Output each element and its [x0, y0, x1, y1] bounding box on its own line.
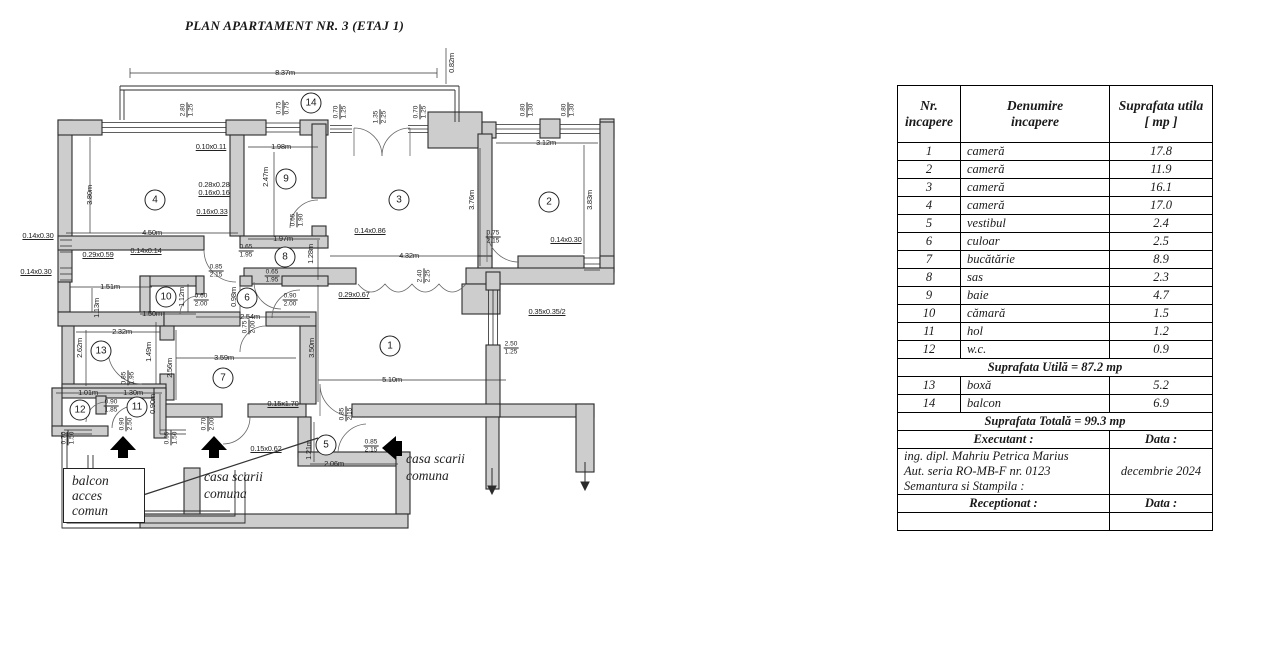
stair-note-left: casa scarii comuna [204, 468, 263, 502]
dimension-label: 1.13m [93, 298, 101, 318]
dimension-label: 1.98m [271, 143, 291, 151]
cell-room-area: 2.5 [1110, 233, 1213, 251]
room-number: 1 [380, 336, 401, 357]
dimension-label: 0.16x0.33 [196, 208, 227, 216]
cell-room-area: 1.5 [1110, 305, 1213, 323]
cell-room-number: 14 [898, 395, 961, 413]
dimension-label: 0.10x0.11 [196, 143, 227, 151]
cell-room-number: 9 [898, 287, 961, 305]
plan-labels-layer: 8.37m0.82m3.12m0.10x0.111.98m2.47m3.80m0… [0, 0, 880, 655]
cell-room-area: 4.7 [1110, 287, 1213, 305]
door-size-label: 0.851.95 [121, 371, 136, 386]
door-size-label: 0.701.25 [413, 105, 428, 120]
room-number: 6 [237, 288, 258, 309]
door-size-label: 0.902.00 [283, 293, 298, 308]
cell-room-area: 16.1 [1110, 179, 1213, 197]
cell-room-area: 0.9 [1110, 341, 1213, 359]
dimension-label: 3.12m [536, 139, 556, 147]
cell-room-name: cameră [961, 161, 1110, 179]
table-row: 5vestibul2.4 [898, 215, 1213, 233]
door-size-label: 0.701.25 [333, 105, 348, 120]
dimension-label: 0.14x0.30 [550, 236, 581, 244]
cell-room-number: 4 [898, 197, 961, 215]
dimension-label: 0.29x0.67 [338, 291, 369, 299]
note-line: balcon [72, 473, 144, 488]
dimension-label: 1.50m [142, 310, 162, 318]
dimension-label: 0.15x0.62 [250, 445, 281, 453]
room-number: 5 [316, 435, 337, 456]
cell-room-number: 2 [898, 161, 961, 179]
dimension-label: 2.32m [112, 328, 132, 336]
note-line: comuna [406, 467, 465, 484]
note-line: comuna [204, 485, 263, 502]
cell-room-area: 5.2 [1110, 377, 1213, 395]
header-denumire: Denumireincapere [961, 86, 1110, 143]
door-size-label: 0.852.15 [209, 264, 224, 279]
dimension-label: 0.14x0.30 [20, 268, 51, 276]
room-number: 9 [276, 169, 297, 190]
cell-room-number: 13 [898, 377, 961, 395]
table-row: 10cămară1.5 [898, 305, 1213, 323]
note-line: acces [72, 488, 144, 503]
table-total-row: Suprafata Totală = 99.3 mp [898, 413, 1213, 431]
executant-info-row: ing. dipl. Mahriu Petrica Marius Aut. se… [898, 449, 1213, 495]
table-total-row: Suprafata Utilă = 87.2 mp [898, 359, 1213, 377]
door-size-label: 0.651.50 [164, 431, 179, 446]
table-row: 12w.c.0.9 [898, 341, 1213, 359]
door-size-label: 2.402.25 [417, 269, 432, 284]
dimension-label: 0.14x0.30 [22, 232, 53, 240]
dimension-label: 3.76m [468, 190, 476, 210]
room-number: 8 [275, 247, 296, 268]
cell-room-area: 8.9 [1110, 251, 1213, 269]
executant-date: decembrie 2024 [1110, 449, 1213, 495]
cell-room-name: baie [961, 287, 1110, 305]
table-row: 3cameră16.1 [898, 179, 1213, 197]
dimension-label: 1.49m [145, 342, 153, 362]
room-number: 4 [145, 190, 166, 211]
cell-room-number: 7 [898, 251, 961, 269]
cell-room-number: 3 [898, 179, 961, 197]
table-row: 9baie4.7 [898, 287, 1213, 305]
cell-room-name: w.c. [961, 341, 1110, 359]
dimension-label: 1.28m [307, 244, 315, 264]
dimension-label: 0.82m [448, 53, 456, 73]
door-size-label: 0.801.30 [561, 103, 576, 118]
dimension-label: 4.50m [142, 229, 162, 237]
empty-row [898, 513, 1213, 531]
room-number: 7 [213, 368, 234, 389]
dimension-label: 0.29x0.59 [82, 251, 113, 259]
dimension-label: 3.50m [308, 338, 316, 358]
total-label: Suprafata Totală = 99.3 mp [898, 413, 1213, 431]
table-header-row: Nr.incapere Denumireincapere Suprafata u… [898, 86, 1213, 143]
cell-room-number: 8 [898, 269, 961, 287]
door-size-label: 0.651.95 [265, 269, 280, 284]
door-size-label: 0.651.90 [290, 213, 305, 228]
receptionat-row: Receptionat : Data : [898, 495, 1213, 513]
room-number: 2 [539, 192, 560, 213]
executant-label: Executant : [898, 431, 1110, 449]
door-size-label: 0.752.00 [242, 320, 257, 335]
dimension-label: 0.14x0.14 [130, 247, 161, 255]
door-size-label: 1.352.25 [373, 110, 388, 125]
dimension-label: 1.97m [273, 235, 293, 243]
cell-room-number: 5 [898, 215, 961, 233]
room-number: 14 [301, 93, 322, 114]
table-row: 14balcon6.9 [898, 395, 1213, 413]
table-row: 1cameră17.8 [898, 143, 1213, 161]
cell-room-area: 17.8 [1110, 143, 1213, 161]
data-label: Data : [1110, 495, 1213, 513]
door-size-label: 0.902.50 [119, 417, 134, 432]
room-number: 11 [127, 397, 148, 418]
door-size-label: 0.702.00 [201, 417, 216, 432]
executant-line: Semantura si Stampila : [904, 479, 1103, 494]
dimension-label: 0.16x0.16 [198, 189, 229, 197]
receptionat-label: Receptionat : [898, 495, 1110, 513]
note-line: casa scarii [406, 450, 465, 467]
dimension-label: 3.83m [586, 190, 594, 210]
cell-room-name: bucătărie [961, 251, 1110, 269]
cell-room-area: 2.4 [1110, 215, 1213, 233]
table-row: 13boxă5.2 [898, 377, 1213, 395]
door-size-label: 2.801.25 [180, 103, 195, 118]
dimension-label: 2.06m [324, 460, 344, 468]
table-row: 6culoar2.5 [898, 233, 1213, 251]
header-suprafata: Suprafata utila[ mp ] [1110, 86, 1213, 143]
cell-room-number: 12 [898, 341, 961, 359]
data-label: Data : [1110, 431, 1213, 449]
dimension-label: 1.01m [78, 389, 98, 397]
header-nr: Nr.incapere [898, 86, 961, 143]
cell-room-area: 17.0 [1110, 197, 1213, 215]
note-line: comun [72, 503, 144, 518]
cell-room-name: cameră [961, 179, 1110, 197]
executant-info: ing. dipl. Mahriu Petrica Marius Aut. se… [898, 449, 1110, 495]
door-size-label: 0.852.15 [339, 407, 354, 422]
table-row: 11hol1.2 [898, 323, 1213, 341]
executant-line: Aut. seria RO-MB-F nr. 0123 [904, 464, 1103, 479]
dimension-label: 5.10m [382, 376, 402, 384]
cell-room-name: cameră [961, 143, 1110, 161]
table-row: 8sas2.3 [898, 269, 1213, 287]
dimension-label: 1.12m [178, 287, 186, 307]
door-size-label: 0.701.50 [61, 431, 76, 446]
dimension-label: 3.59m [214, 354, 234, 362]
door-size-label: 0.752.15 [486, 230, 501, 245]
room-number: 13 [91, 341, 112, 362]
cell-room-area: 2.3 [1110, 269, 1213, 287]
note-line: casa scarii [204, 468, 263, 485]
room-number: 3 [389, 190, 410, 211]
cell-room-name: boxă [961, 377, 1110, 395]
stair-note-right: casa scarii comuna [406, 450, 465, 484]
room-area-table: Nr.incapere Denumireincapere Suprafata u… [897, 85, 1213, 531]
cell-room-area: 11.9 [1110, 161, 1213, 179]
door-size-label: 0.602.00 [194, 293, 209, 308]
dimension-label: 1.21m [305, 440, 313, 460]
cell-room-name: culoar [961, 233, 1110, 251]
cell-room-name: cămară [961, 305, 1110, 323]
total-label: Suprafata Utilă = 87.2 mp [898, 359, 1213, 377]
dimension-label: 8.37m [275, 69, 295, 77]
cell-room-name: vestibul [961, 215, 1110, 233]
cell-room-number: 10 [898, 305, 961, 323]
room-number: 12 [70, 400, 91, 421]
table-row: 7bucătărie8.9 [898, 251, 1213, 269]
dimension-label: 2.62m [76, 338, 84, 358]
balcony-access-note: balcon acces comun [63, 468, 145, 523]
cell-room-area: 6.9 [1110, 395, 1213, 413]
cell-room-name: balcon [961, 395, 1110, 413]
cell-room-number: 1 [898, 143, 961, 161]
executant-header-row: Executant : Data : [898, 431, 1213, 449]
dimension-label: 2.56m [166, 358, 174, 378]
dimension-label: 1.30m [123, 389, 143, 397]
cell-room-name: cameră [961, 197, 1110, 215]
table-row: 4cameră17.0 [898, 197, 1213, 215]
door-size-label: 0.901.85 [104, 399, 119, 414]
dimension-label: 2.47m [262, 167, 270, 187]
table-row: 2cameră11.9 [898, 161, 1213, 179]
door-size-label: 2.501.25 [504, 341, 519, 356]
cell-room-area: 1.2 [1110, 323, 1213, 341]
dimension-label: 0.14x0.86 [354, 227, 385, 235]
dimension-label: 0.15x1.70 [267, 400, 298, 408]
cell-room-name: sas [961, 269, 1110, 287]
dimension-label: 0.35x0.35/2 [529, 308, 566, 316]
door-size-label: 0.801.30 [520, 103, 535, 118]
dimension-label: 3.80m [86, 185, 94, 205]
executant-line: ing. dipl. Mahriu Petrica Marius [904, 449, 1103, 464]
page: PLAN APARTAMENT NR. 3 (ETAJ 1) 8.37m0.82… [0, 0, 1270, 655]
door-size-label: 0.852.15 [364, 439, 379, 454]
cell-room-name: hol [961, 323, 1110, 341]
table-body: 1cameră17.82cameră11.93cameră16.14cameră… [898, 143, 1213, 431]
dimension-label: 0.90m [149, 394, 157, 414]
cell-room-number: 6 [898, 233, 961, 251]
room-number: 10 [156, 287, 177, 308]
dimension-label: 4.32m [399, 252, 419, 260]
cell-room-number: 11 [898, 323, 961, 341]
dimension-label: 1.51m [100, 283, 120, 291]
door-size-label: 0.651.95 [239, 244, 254, 259]
door-size-label: 0.750.75 [276, 101, 291, 116]
